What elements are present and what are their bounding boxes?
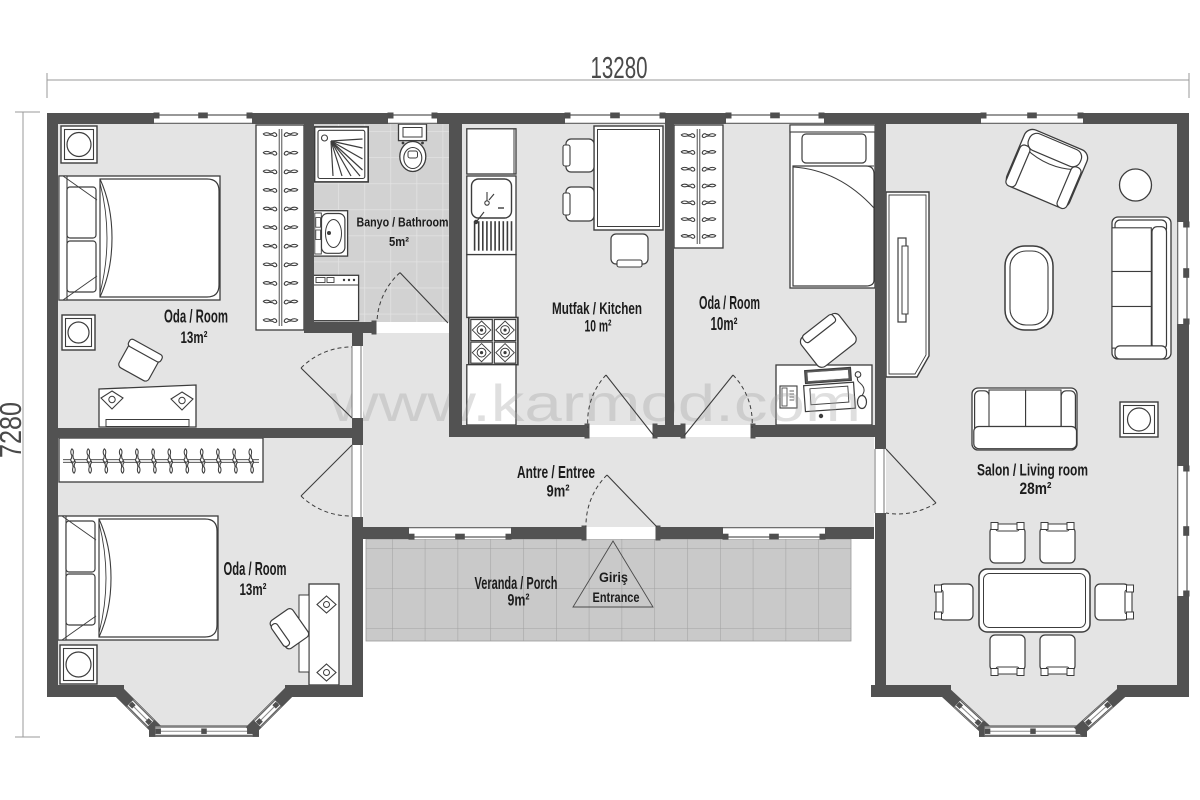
svg-text:Banyo / Bathroom: Banyo / Bathroom — [357, 216, 449, 230]
svg-text:Salon / Living room: Salon / Living room — [977, 461, 1088, 480]
svg-text:Oda / Room: Oda / Room — [164, 307, 228, 327]
svg-text:Entrance: Entrance — [593, 590, 640, 605]
svg-text:Antre / Entree: Antre / Entree — [517, 462, 595, 482]
svg-text:13m²: 13m² — [240, 580, 267, 599]
svg-text:13m²: 13m² — [181, 328, 208, 347]
svg-text:www.karmod.com: www.karmod.com — [329, 375, 861, 433]
svg-text:Oda / Room: Oda / Room — [699, 293, 760, 313]
svg-text:9m²: 9m² — [508, 591, 530, 610]
svg-text:10 m²: 10 m² — [585, 317, 612, 336]
svg-text:28m²: 28m² — [1020, 479, 1052, 498]
svg-text:13280: 13280 — [591, 50, 648, 85]
svg-text:10m²: 10m² — [711, 314, 738, 334]
svg-text:Mutfak / Kitchen: Mutfak / Kitchen — [552, 299, 642, 318]
svg-text:Giriş: Giriş — [599, 570, 628, 585]
svg-text:Oda / Room: Oda / Room — [224, 559, 287, 579]
svg-text:9m²: 9m² — [547, 482, 570, 501]
svg-text:5m²: 5m² — [389, 235, 409, 249]
svg-text:7280: 7280 — [0, 402, 28, 458]
